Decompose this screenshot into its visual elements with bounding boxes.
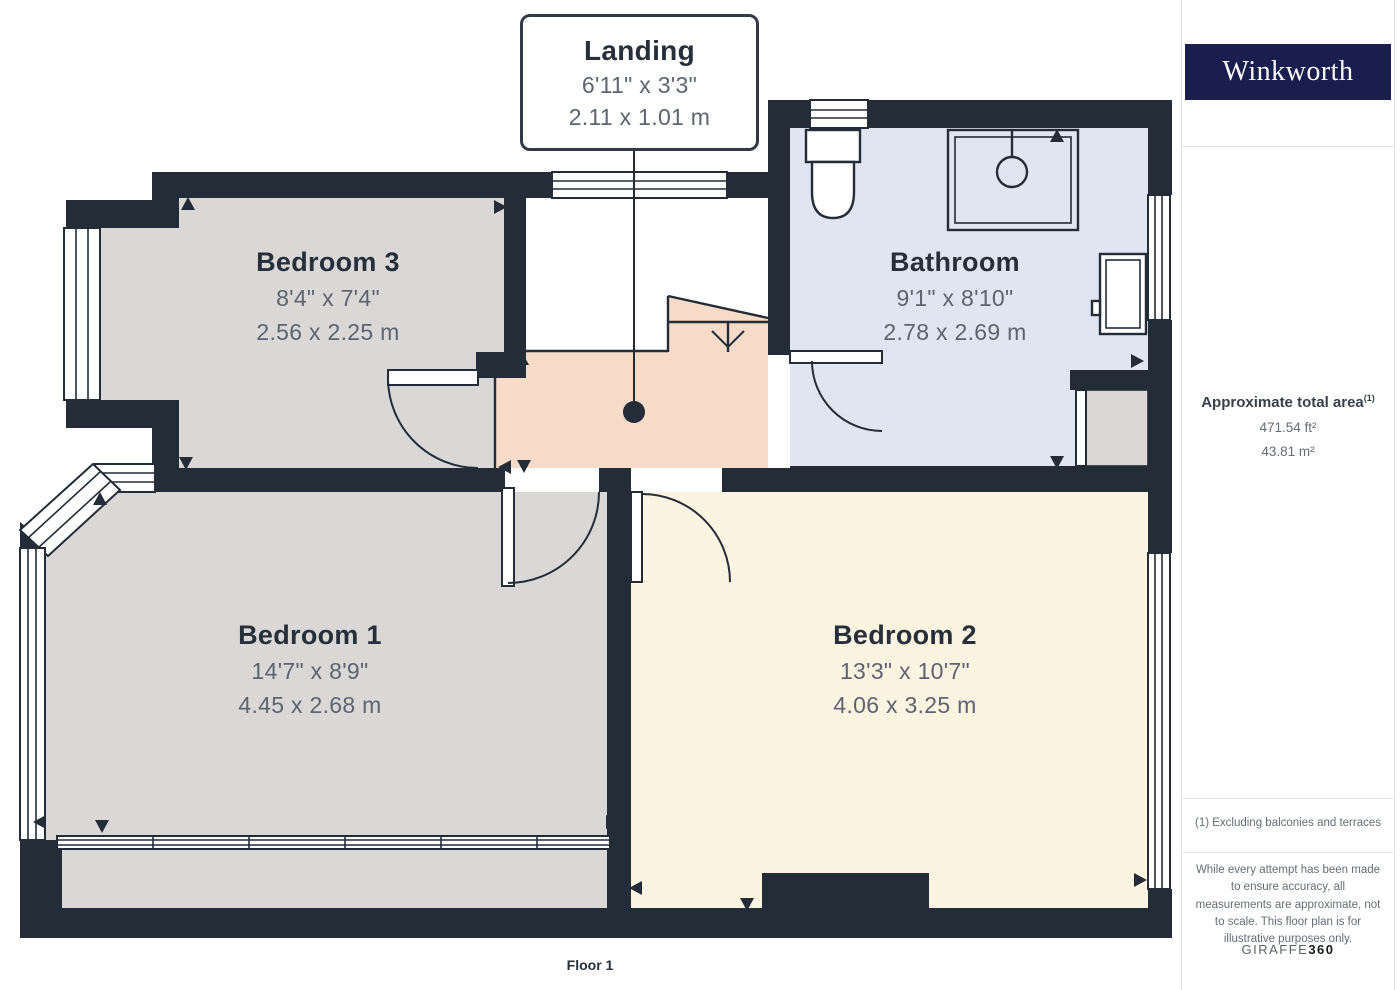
giraffe360-normal: GIRAFFE xyxy=(1241,942,1308,957)
disclaimer-text: While every attempt has been made to ens… xyxy=(1195,862,1381,948)
bathroom-cupboard xyxy=(1086,390,1148,466)
bathroom-door-leaf xyxy=(790,351,882,363)
bedroom-3-door-leaf xyxy=(388,370,478,385)
chimney-breast xyxy=(762,873,929,916)
total-area-superscript: (1) xyxy=(1364,393,1375,403)
landing-callout: Landing 6'11" x 3'3" 2.11 x 1.01 m xyxy=(520,14,759,151)
bedroom-2-door-leaf xyxy=(631,492,642,582)
bathroom-top-window xyxy=(810,100,868,128)
info-sidebar: Winkworth Approximate total area(1) 471.… xyxy=(1181,0,1395,990)
bedroom-3-floor xyxy=(179,196,504,468)
divider xyxy=(1182,146,1394,147)
toilet-fixture xyxy=(806,130,860,218)
bathroom-right-window xyxy=(1148,195,1170,320)
bedroom-1-bottom-window xyxy=(57,836,610,849)
landing-name: Landing xyxy=(584,35,695,67)
total-area-title: Approximate total area(1) xyxy=(1182,393,1394,411)
landing-dims-m: 2.11 x 1.01 m xyxy=(569,104,711,131)
bedroom-3-bay-floor xyxy=(100,228,179,400)
total-area-ft: 471.54 ft² xyxy=(1182,420,1394,435)
giraffe360-logo: GIRAFFE360 xyxy=(1182,942,1394,957)
divider xyxy=(1182,798,1394,799)
giraffe360-bold: 360 xyxy=(1308,942,1334,957)
floorplan-page: Landing 6'11" x 3'3" 2.11 x 1.01 m Bedro… xyxy=(0,0,1400,990)
divider xyxy=(1182,852,1394,853)
bedroom-2-right-window xyxy=(1148,553,1170,889)
sink-fixture xyxy=(1092,254,1146,334)
floor-label: Floor 1 xyxy=(0,957,1180,973)
callout-leader-dot xyxy=(623,401,645,423)
bedroom-3-bay-window xyxy=(64,228,100,400)
landing-dims-ft: 6'11" x 3'3" xyxy=(582,72,697,99)
footnote: (1) Excluding balconies and terraces xyxy=(1182,817,1394,829)
bedroom-1-left-window xyxy=(20,548,45,840)
room-floors xyxy=(45,128,1148,908)
bedroom-2-floor xyxy=(631,492,1148,908)
total-area-block: Approximate total area(1) 471.54 ft² 43.… xyxy=(1182,393,1394,459)
total-area-title-text: Approximate total area xyxy=(1201,394,1364,411)
bedroom-1-door-leaf xyxy=(502,488,514,586)
total-area-m: 43.81 m² xyxy=(1182,444,1394,459)
cupboard-divider xyxy=(1076,390,1086,466)
stairwell-window xyxy=(552,172,727,198)
winkworth-logo: Winkworth xyxy=(1185,44,1391,100)
